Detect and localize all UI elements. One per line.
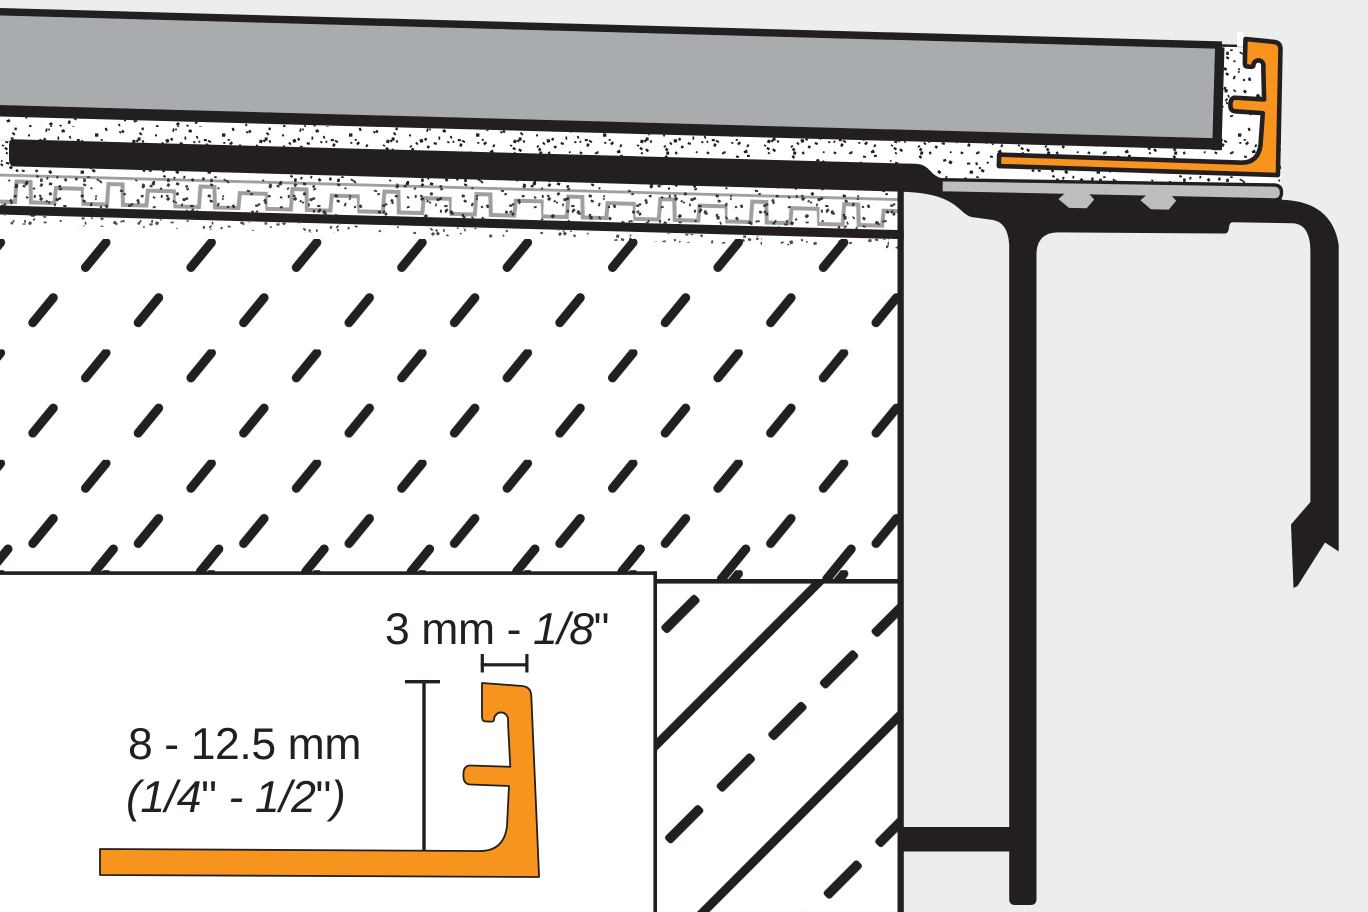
svg-text:3 mm - 1/8": 3 mm - 1/8" [385, 605, 609, 654]
svg-text:8 - 12.5 mm: 8 - 12.5 mm [128, 720, 361, 769]
svg-text:(1/4" - 1/2"): (1/4" - 1/2") [126, 773, 345, 822]
